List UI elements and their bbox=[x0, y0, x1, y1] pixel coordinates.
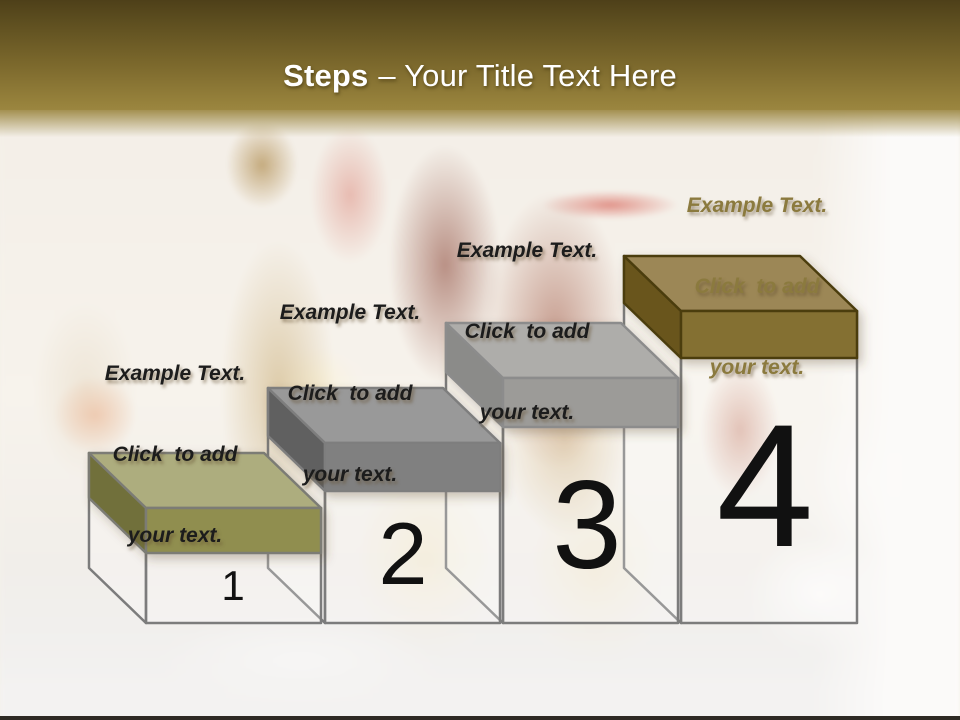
slide-title-keyword: Steps bbox=[283, 58, 368, 93]
caption-line: Example Text. bbox=[687, 192, 827, 219]
step-3-number: 3 bbox=[552, 463, 622, 588]
step-2-caption: Example Text. Click to add your text. bbox=[280, 245, 420, 515]
slide-title: Steps– Your Title Text Here bbox=[0, 58, 960, 94]
caption-line: your text. bbox=[105, 522, 245, 549]
caption-line: Click to add bbox=[280, 380, 420, 407]
caption-line: Click to add bbox=[457, 318, 597, 345]
step-4-caption: Example Text. Click to add your text. bbox=[687, 138, 827, 408]
caption-line: your text. bbox=[280, 461, 420, 488]
caption-line: your text. bbox=[687, 354, 827, 381]
caption-line: Click to add bbox=[687, 273, 827, 300]
step-1-number: 1 bbox=[221, 565, 244, 607]
step-2-number: 2 bbox=[379, 510, 428, 598]
step-3-caption: Example Text. Click to add your text. bbox=[457, 183, 597, 453]
caption-line: Example Text. bbox=[105, 360, 245, 387]
caption-line: your text. bbox=[457, 399, 597, 426]
bottom-edge-line bbox=[0, 716, 960, 720]
caption-line: Click to add bbox=[105, 441, 245, 468]
step-4-number: 4 bbox=[716, 399, 813, 574]
slide-title-text: – Your Title Text Here bbox=[378, 58, 677, 93]
step-1-caption: Example Text. Click to add your text. bbox=[105, 306, 245, 576]
caption-line: Example Text. bbox=[457, 237, 597, 264]
caption-line: Example Text. bbox=[280, 299, 420, 326]
